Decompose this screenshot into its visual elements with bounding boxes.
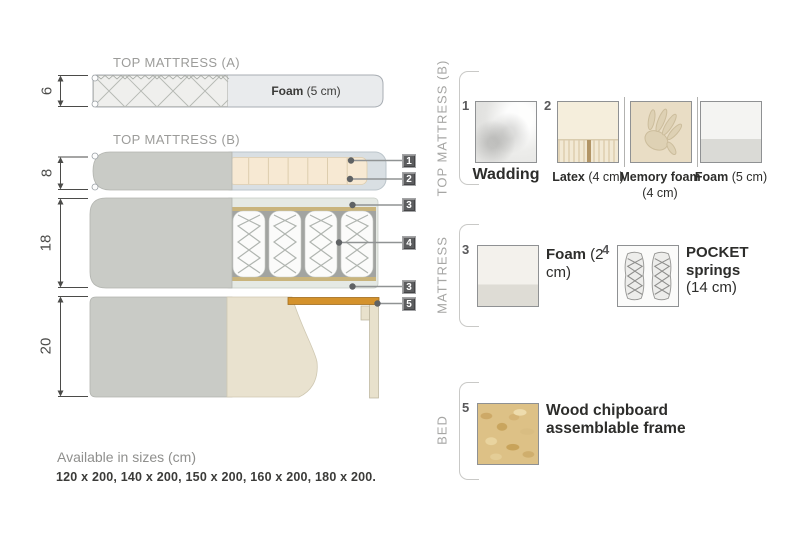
top-mattress-b-shape xyxy=(92,152,386,190)
bed-construction-infographic: 6 8 18 20 TOP MATTRESS (A) TOP MATTRESS … xyxy=(0,0,800,533)
dimension-20: 20 xyxy=(38,338,55,355)
dimension-8: 8 xyxy=(39,169,56,177)
callout-chip-1: 1 xyxy=(402,154,416,168)
latex-notch xyxy=(587,140,591,162)
callout-chip-3: 3 xyxy=(402,198,416,212)
wood-chipboard-swatch-icon xyxy=(477,403,539,465)
available-sizes-title: Available in sizes (cm) xyxy=(57,449,196,465)
legend-group-top-mattress-b-label: TOP MATTRESS (B) xyxy=(435,60,450,197)
dimension-rulers xyxy=(58,76,89,397)
memory-foam-swatch-icon xyxy=(630,101,692,163)
legend-num-1: 1 xyxy=(462,98,469,113)
top-mattress-b-title: TOP MATTRESS (B) xyxy=(113,132,240,147)
mattress-shape xyxy=(90,198,378,288)
callout-chip-4: 4 xyxy=(402,236,416,250)
legend-group-bed-label: BED xyxy=(435,415,450,445)
foam-5cm-swatch-icon xyxy=(700,101,762,163)
foam-2cm-swatch-icon xyxy=(477,245,539,307)
callout-chip-5: 5 xyxy=(402,297,416,311)
latex-swatch-icon xyxy=(557,101,619,163)
legend-group-mattress-label: MATTRESS xyxy=(435,236,450,314)
legend-divider-1 xyxy=(624,97,625,167)
bracket-mattress xyxy=(459,224,479,327)
legend-num-2: 2 xyxy=(544,98,551,113)
foam-5cm-caption: Foam (5 cm) xyxy=(689,170,773,186)
legend-divider-2 xyxy=(697,97,698,167)
legend-num-5: 5 xyxy=(462,400,469,415)
legend-num-3: 3 xyxy=(462,242,469,257)
bed-shape xyxy=(90,297,379,398)
foam-a-label: Foam (5 cm) xyxy=(231,84,381,98)
bracket-bed xyxy=(459,382,479,480)
wood-chipboard-caption: Wood chipboard assemblable frame xyxy=(546,402,726,439)
pocket-springs-caption: POCKET springs (14 cm) xyxy=(686,244,762,297)
dimension-6: 6 xyxy=(39,87,56,95)
foam-2cm-caption: Foam (2 cm) xyxy=(546,246,608,281)
dimension-18: 18 xyxy=(38,235,55,252)
top-mattress-a-title: TOP MATTRESS (A) xyxy=(113,55,240,70)
pocket-springs-swatch-icon xyxy=(617,245,679,307)
hand-imprint-icon xyxy=(631,102,691,162)
callout-chip-2: 2 xyxy=(402,172,416,186)
pocket-springs-icon xyxy=(618,246,678,306)
legend-num-4: 4 xyxy=(602,242,609,257)
callout-chip-3b: 3 xyxy=(402,280,416,294)
available-sizes-list: 120 x 200, 140 x 200, 150 x 200, 160 x 2… xyxy=(56,470,376,484)
wadding-swatch-icon xyxy=(475,101,537,163)
